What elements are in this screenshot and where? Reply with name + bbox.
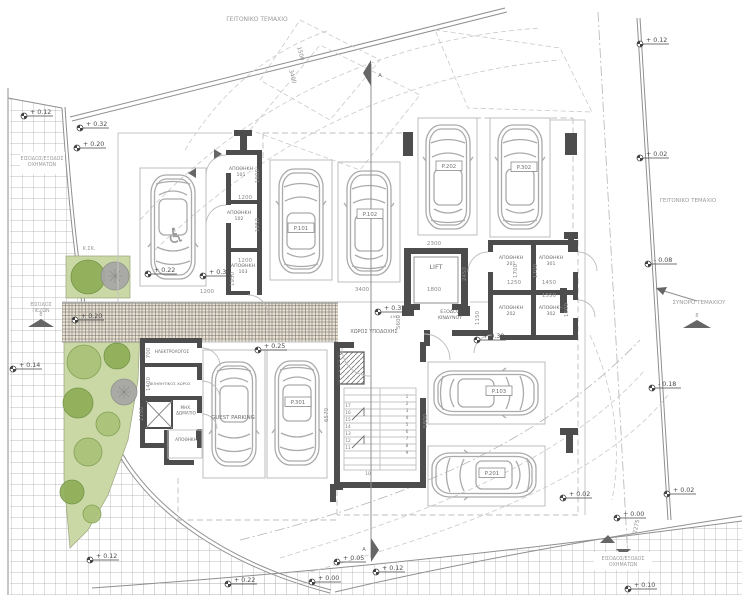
machine-room-label: ΜΗΧ.ΔΩΜΑΤΙΟ — [176, 405, 196, 415]
neighbor-plot-top: ΓΕΙΤΟΝΙΚΟ ΤΕΜΑΧΙΟ — [226, 16, 288, 23]
parking-space-label: P.102 — [357, 209, 383, 219]
parking-space-label: GUEST PARKING — [211, 415, 255, 421]
stair-step-number: 9 — [406, 450, 409, 456]
level-value: - 0.08 — [654, 257, 672, 264]
dimension-label: 1950 — [255, 217, 261, 232]
dimension-label: 2450 — [462, 266, 468, 281]
level-value: + 0.00 — [318, 575, 339, 582]
parking-space-id: P.301 — [291, 400, 305, 406]
auxiliary-room-label: ΒΟΗΘΗΤΙΚΟΣ ΧΩΡΟΣ — [150, 381, 192, 386]
stair-step-number: 2 — [406, 401, 409, 407]
dimension-label: 1950 — [230, 271, 236, 286]
level-value: + 0.32 — [86, 121, 107, 128]
dimension-label: 5800 — [423, 413, 429, 428]
storage-301-label: ΑΠΟΘΗΚΗ301 — [539, 255, 564, 267]
section-a-bottom-label: A — [362, 547, 366, 553]
stair-step-number: 17 — [345, 403, 351, 409]
dimension-label: 1250 — [507, 280, 522, 286]
dimension-label: 3400 — [355, 287, 370, 293]
parking-space-id: P.302 — [517, 165, 531, 171]
level-value: + 0.12 — [96, 553, 117, 560]
dimension-label: 6570 — [324, 407, 330, 422]
storage-102-label: ΑΠΟΘΗΚΗ102 — [227, 210, 252, 222]
car-p101 — [276, 169, 326, 273]
dimension-label: 1800 — [427, 287, 442, 293]
stair-step-number: 4 — [406, 415, 409, 421]
road-mark-right: 8 — [695, 313, 698, 319]
dimension-label: 1150 — [475, 310, 481, 325]
dimension-label: 1150 — [139, 406, 145, 421]
level-value: + 0.12 — [646, 37, 667, 44]
level-marker: + 0.02 — [637, 151, 669, 161]
stair-step-number: 8 — [406, 443, 409, 449]
stair-step-number: 16 — [345, 410, 351, 416]
level-marker: + 0.12 — [637, 37, 669, 47]
dimension-label: 1450 — [542, 280, 557, 286]
level-value: + 0.02 — [646, 151, 667, 158]
plot-boundary-label: ΣΥΝΟΡΟ ΤΕΜΑΧΙΟΥ — [672, 300, 726, 306]
level-value: + 0.12 — [30, 109, 51, 116]
level-marker: - 0.08 — [645, 257, 677, 267]
level-marker: + 0.00 — [614, 511, 646, 521]
floor-plan-page: + 0.12+ 0.32+ 0.20+ 0.14+ 0.20+ 0.22+ 0.… — [0, 0, 742, 595]
dimension-label: 3400 — [287, 69, 297, 85]
dimension-label: 2300 — [427, 241, 442, 247]
level-value: + 0.35 — [384, 305, 405, 312]
level-value: + 0.02 — [569, 491, 590, 498]
dimension-label: 1200 — [200, 289, 215, 295]
site-plan-drawing: + 0.12+ 0.32+ 0.20+ 0.14+ 0.20+ 0.22+ 0.… — [0, 0, 742, 595]
level-value: + 0.22 — [234, 577, 255, 584]
parking-space-label: P.301 — [285, 397, 311, 407]
parking-space-label: P.101 — [288, 223, 314, 233]
level-marker: + 0.02 — [560, 491, 592, 501]
dimension-label: 1200 — [238, 195, 253, 201]
level-value: + 0.12 — [382, 565, 403, 572]
section-a-top-label: A — [378, 73, 382, 79]
level-marker: + 0.20 — [74, 141, 106, 151]
storage-202-label: ΑΠΟΘΗΚΗ202 — [499, 305, 524, 317]
level-marker: + 0.25 — [255, 343, 287, 353]
stair-step-number: 10 — [365, 471, 371, 477]
electrical-room-label: ΗΛΕΚΤΡΟΛΟΓΟΣ — [155, 349, 190, 354]
dimension-label: 1500 — [295, 46, 305, 62]
neighbor-plot-right: ΓΕΙΤΟΝΙΚΟ ΤΕΜΑΧΙΟ — [660, 198, 717, 204]
storage-201-label: ΑΠΟΘΗΚΗ201 — [499, 255, 524, 267]
stair-step-number: 14 — [345, 424, 351, 430]
ksk-label: Κ.ΣΚ. — [83, 246, 96, 252]
level-value: + 0.22 — [154, 267, 175, 274]
stair-step-number: 12 — [345, 438, 351, 444]
staircase — [344, 388, 416, 470]
planter-top — [66, 256, 130, 298]
stair-step-number: 11 — [345, 445, 351, 451]
stair-step-number: 15 — [345, 417, 351, 423]
parking-space-id: GUEST PARKING — [211, 415, 255, 421]
level-value: + 0.30 — [483, 333, 504, 340]
parking-space-id: P.103 — [492, 389, 506, 395]
car-p102 — [344, 171, 394, 275]
level-value: + 0.14 — [19, 362, 40, 369]
level-value: + 0.02 — [673, 487, 694, 494]
storage-302-label: ΑΠΟΘΗΚΗ302 — [539, 305, 564, 317]
road-mark-left: 8 — [39, 312, 42, 318]
level-value: + 0.05 — [343, 555, 364, 562]
stair-step-number: 13 — [345, 431, 351, 437]
car-p202 — [423, 125, 473, 229]
parking-space-label: P.302 — [511, 162, 537, 172]
boundary-leader-arrow — [656, 287, 697, 301]
level-value: - 0.18 — [658, 381, 676, 388]
parking-space-label: P.201 — [479, 468, 505, 478]
dimension-label: 1600 — [564, 302, 570, 317]
dimension-label: 1900 — [255, 168, 261, 183]
stair-step-number: 6 — [406, 429, 409, 435]
car-guest — [209, 362, 259, 466]
level-marker: + 0.32 — [77, 121, 109, 131]
lift-label: LIFT — [429, 263, 442, 271]
paved-walkway — [62, 303, 338, 342]
reception-label: ΧΩΡΟΣ ΥΠΟΔΟΧΗΣ — [350, 329, 397, 335]
stair-step-number: 1 — [406, 394, 409, 400]
level-value: + 0.20 — [81, 313, 102, 320]
car-p302 — [495, 125, 545, 229]
parking-space-id: P.202 — [442, 164, 456, 170]
level-marker: + 0.05 — [334, 555, 366, 565]
dimension-label: 1700 — [533, 263, 539, 278]
stair-step-number: 7 — [406, 436, 409, 442]
level-value: + 0.25 — [264, 343, 285, 350]
level-marker: - 0.18 — [649, 381, 681, 391]
parking-space-id: P.102 — [363, 212, 377, 218]
parking-space-label: P.202 — [436, 161, 462, 171]
level-value: + 0.20 — [83, 141, 104, 148]
dim-note: 4951 — [390, 314, 400, 319]
wheelchair-icon: ♿ — [167, 224, 186, 248]
level-value: + 0.00 — [623, 511, 644, 518]
parking-space-label: P.103 — [486, 386, 512, 396]
level-value: + 0.10 — [634, 582, 655, 589]
parking-space-id: P.101 — [294, 226, 308, 232]
level-value: + 0.30 — [209, 269, 230, 276]
storage-small-label: ΑΠΟΘΗΚΗ — [175, 437, 197, 442]
dimension-label: 1550 — [542, 293, 557, 299]
stair-step-number: 3 — [406, 408, 409, 414]
parking-space-id: P.201 — [485, 471, 499, 477]
car-p301 — [272, 361, 322, 465]
shaft — [146, 401, 172, 428]
stair-step-number: 5 — [406, 422, 409, 428]
dimension-label: 700 — [146, 347, 152, 358]
